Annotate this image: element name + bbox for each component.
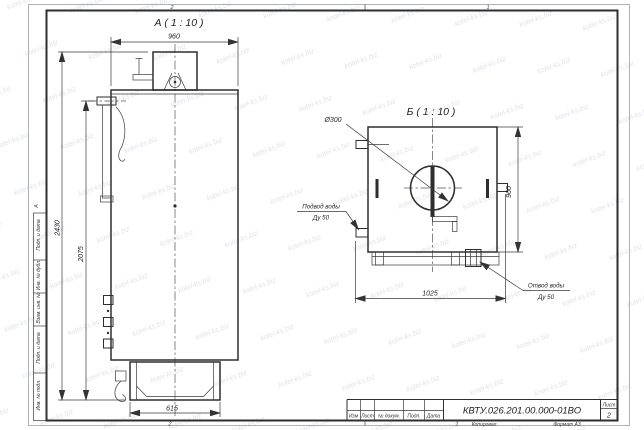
- inlet-label-line2: Ду 50: [312, 215, 330, 222]
- dim-text-d300: Ø300: [323, 117, 341, 124]
- seam-mark: [376, 179, 379, 198]
- zone-marker-top-left: 2: [169, 5, 173, 11]
- titleblock-col-list: Лист: [360, 414, 374, 420]
- dim-text-960: 960: [168, 34, 180, 41]
- titleblock-col-docnum: № докум.: [378, 414, 400, 420]
- dim-text-960b: 960: [506, 186, 513, 198]
- view-a-title: А ( 1 : 10 ): [153, 17, 203, 29]
- side-column-label: Подп. и дата: [36, 219, 42, 251]
- side-column-label: Инв. № подл.: [36, 379, 42, 410]
- side-column-label: Взам. инв. №: [36, 292, 42, 324]
- zone-marker-bottom-right: 1: [455, 422, 458, 428]
- copied-label: Копировал: [472, 422, 497, 428]
- format-label: Формат А3: [553, 422, 581, 428]
- zone-marker-bottom-left: 2: [167, 422, 171, 428]
- sheet-label: Лист: [602, 403, 616, 409]
- zone-marker-top-right: 1: [486, 5, 489, 11]
- seam-mark: [486, 179, 489, 198]
- dim-text-615: 615: [166, 406, 178, 413]
- side-column-label: Подп. и дата: [36, 332, 42, 364]
- inlet-label-line1: Подвод воды: [302, 204, 340, 211]
- engineering-drawing: kotel-ks.biz kotel-ks.biz 2 1 2 1 А Подп…: [0, 0, 644, 430]
- view-b-title: Б ( 1 : 10 ): [407, 106, 456, 118]
- titleblock-col-izm: Изм: [349, 414, 359, 420]
- titleblock-col-data: Дата: [426, 414, 440, 420]
- sheet-number: 2: [606, 413, 611, 420]
- drawing-sheet: kotel-ks.biz kotel-ks.biz 2 1 2 1 А Подп…: [0, 0, 644, 430]
- dim-text-2430: 2430: [55, 220, 62, 237]
- titleblock-col-podp: Подп.: [407, 414, 420, 420]
- side-column-label: Инв. № дубл.: [36, 260, 42, 291]
- outlet-label-line1: Отвод воды: [528, 283, 565, 290]
- zone-letter: А: [34, 204, 40, 209]
- doc-number: КВТУ.026.201.00.000-01ВО: [463, 406, 582, 417]
- outlet-label-line2: Ду 50: [537, 294, 555, 301]
- dim-text-2075: 2075: [78, 246, 85, 263]
- center-mark: [173, 204, 176, 207]
- dim-text-1025: 1025: [422, 291, 438, 298]
